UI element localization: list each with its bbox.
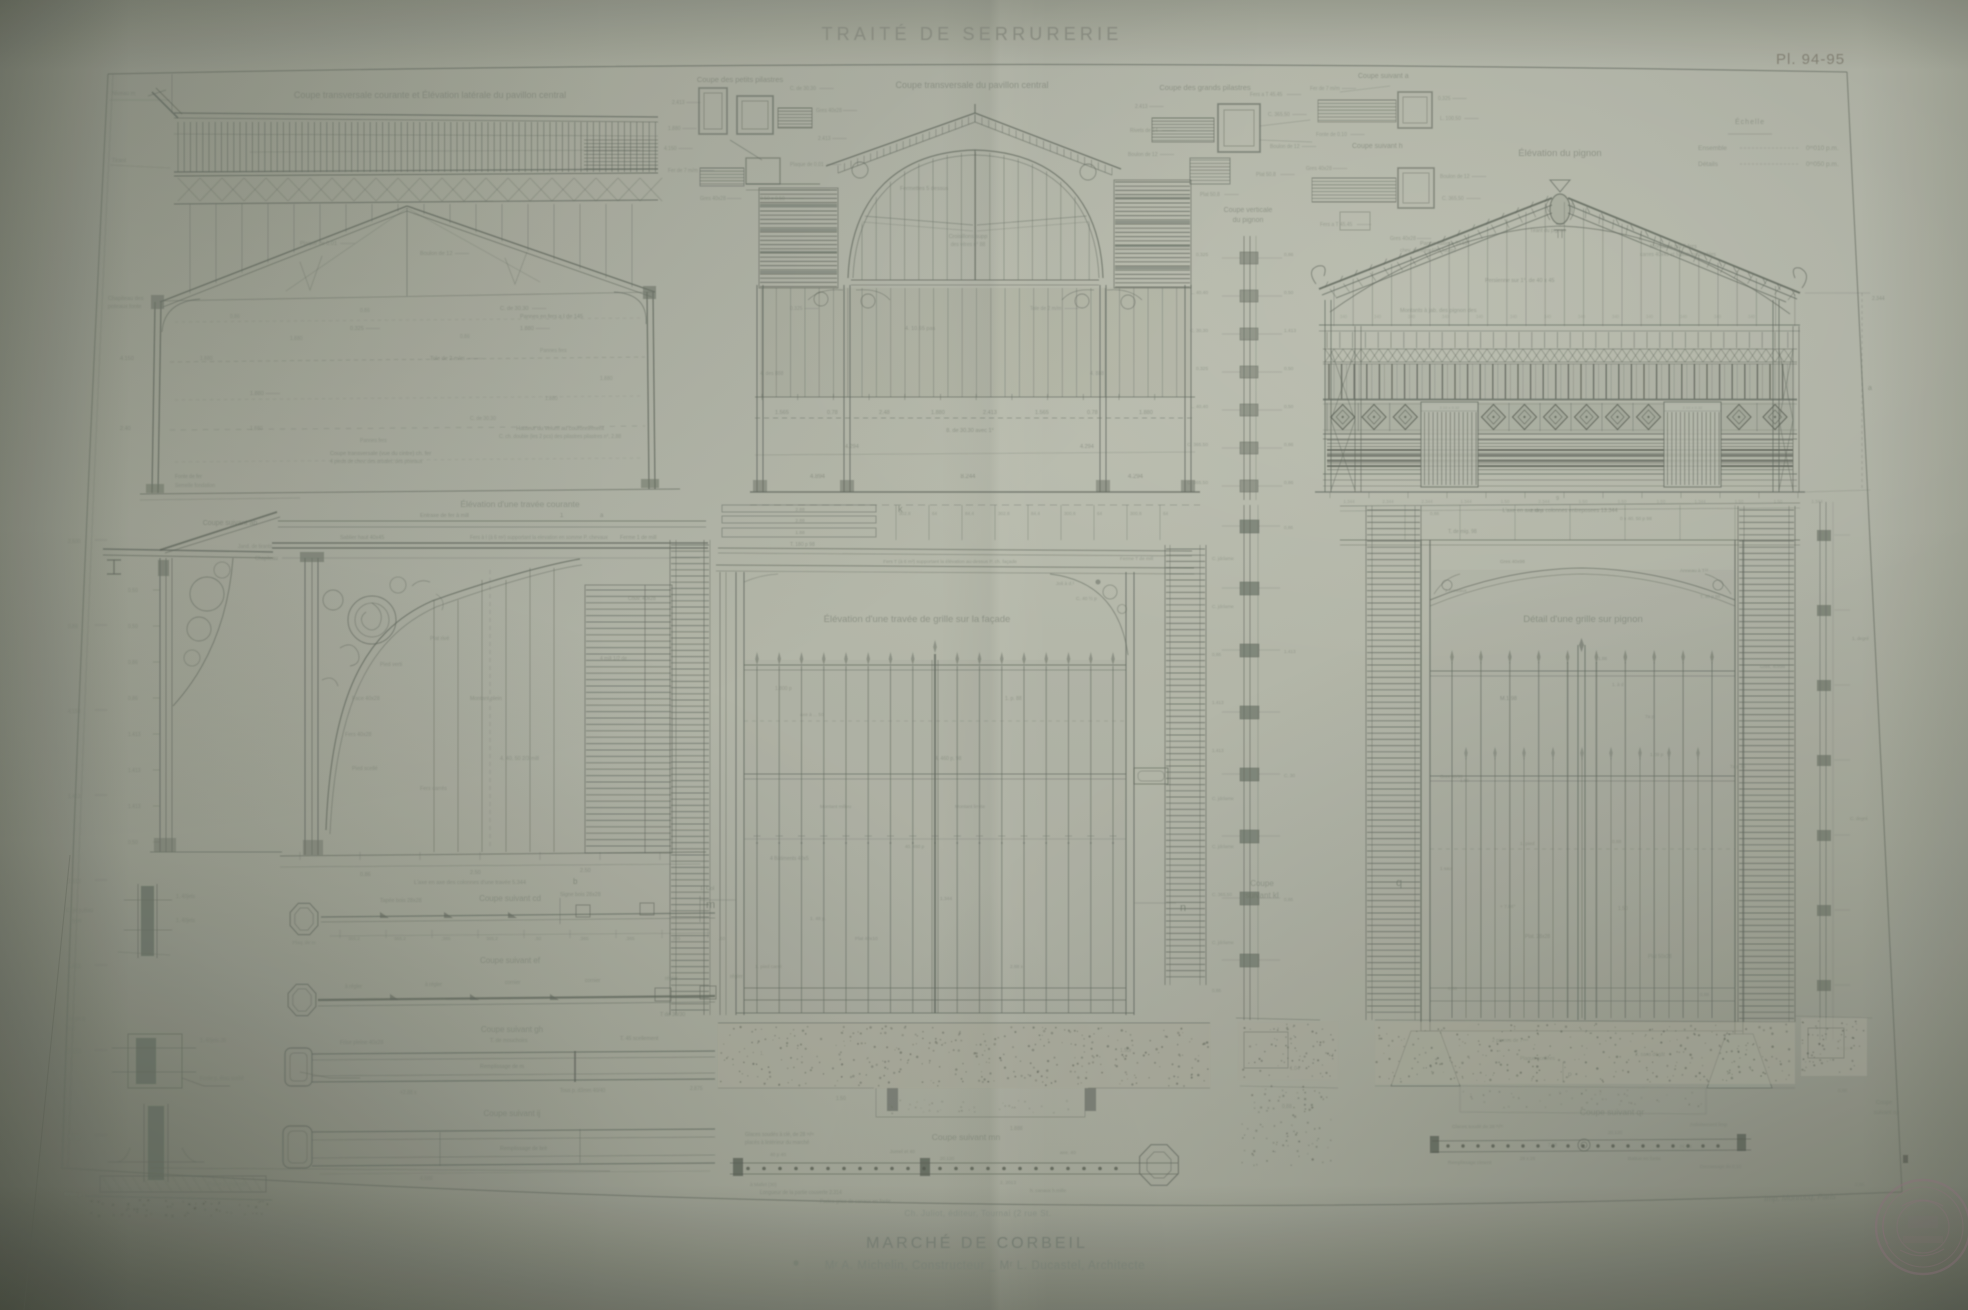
svg-text:Gres 40x28: Gres 40x28	[816, 108, 842, 114]
svg-text:0.86: 0.86	[1284, 442, 1294, 448]
svg-text:a: a	[1868, 385, 1872, 392]
svg-text:MARCHÉ DE CORBEIL: MARCHÉ DE CORBEIL	[866, 1233, 1088, 1252]
svg-text:L'axe en axe des colonnes entr: L'axe en axe des colonnes entreposees 13…	[1502, 508, 1617, 514]
svg-text:Fonte p. étau scellé: Fonte p. étau scellé	[200, 1076, 244, 1082]
svg-text:Plaque de 0.01: Plaque de 0.01	[300, 241, 337, 247]
svg-text:Montant milieu: Montant milieu	[820, 804, 852, 810]
svg-text:Entraxe de fer à mill: Entraxe de fer à mill	[420, 513, 469, 519]
svg-text:1.50: 1.50	[1618, 499, 1627, 504]
svg-text:1. 40jets JB: 1. 40jets JB	[200, 1038, 227, 1044]
svg-text:340: 340	[1714, 314, 1722, 319]
svg-text:0.88: 0.88	[1448, 986, 1457, 991]
svg-text:Chapiteau: Chapiteau	[255, 556, 278, 562]
svg-text:cornier: cornier	[585, 978, 601, 984]
svg-text:du pignon: du pignon	[1233, 217, 1264, 224]
svg-text:2.413: 2.413	[672, 100, 685, 106]
svg-text:Mʳ A. Michelin, Constructeur _: Mʳ A. Michelin, Constructeur _ Mʳ L. Duc…	[825, 1260, 1145, 1272]
svg-text:T. 180 p 98: T. 180 p 98	[790, 542, 815, 548]
svg-text:1.413: 1.413	[128, 732, 141, 738]
svg-text:2.413: 2.413	[818, 136, 831, 142]
svg-text:1.880: 1.880	[600, 376, 613, 382]
svg-text:0.86: 0.86	[1212, 988, 1221, 993]
svg-text:Patins p. légende: Patins p. légende	[208, 1182, 247, 1188]
svg-text:1.565: 1.565	[1035, 410, 1049, 416]
svg-text:1.880: 1.880	[520, 326, 534, 332]
svg-text:4. des 888: 4. des 888	[760, 371, 784, 377]
svg-text:Chapiteau des: Chapiteau des	[108, 296, 144, 302]
svg-text:1.50: 1.50	[836, 1096, 846, 1102]
svg-text:Fers à I (à 6 m²) supportant l: Fers à I (à 6 m²) supportant la elevatio…	[470, 535, 608, 541]
svg-text:0.325: 0.325	[1438, 96, 1451, 102]
svg-text:C. de 30.30: C. de 30.30	[470, 416, 496, 422]
svg-text:0.88: 0.88	[1838, 1088, 1847, 1093]
svg-text:Plat 50x28: Plat 50x28	[1648, 954, 1672, 960]
svg-text:0.50: 0.50	[1284, 290, 1294, 296]
svg-text:0.325: 0.325	[1196, 366, 1208, 372]
svg-text:1.50: 1.50	[1657, 499, 1666, 504]
svg-text:q: q	[1396, 877, 1402, 889]
svg-text:C. ch. double (les 2 pcs) des: C. ch. double (les 2 pcs) des pilastres …	[499, 434, 621, 440]
svg-text:m: m	[706, 899, 715, 911]
svg-text:9: 9	[1556, 496, 1559, 502]
svg-text:4 Bâtiments 40x5: 4 Bâtiments 40x5	[770, 856, 809, 862]
svg-text:0.50 x 0.50: 0.50 x 0.50	[760, 196, 785, 202]
svg-text:Coupe transversale courante et: Coupe transversale courante et Élévation…	[294, 90, 566, 100]
svg-text:Glaces soudé de 28 ᵐ/ᵐ: Glaces soudé de 28 ᵐ/ᵐ	[1452, 1124, 1503, 1130]
svg-text:Boulon de 12: Boulon de 12	[1440, 174, 1470, 180]
svg-text:0 x 40. 50 p 98: 0 x 40. 50 p 98	[1620, 516, 1652, 522]
svg-text:340: 340	[1544, 314, 1552, 319]
svg-text:Hauteur du velum au couronneme: Hauteur du velum au couronnement	[516, 426, 604, 432]
svg-text:0.88: 0.88	[1430, 511, 1439, 516]
svg-text:Glaces soudés à clé, de 28 ᵐ/ᵐ: Glaces soudés à clé, de 28 ᵐ/ᵐ	[745, 1132, 814, 1138]
svg-text:Fonte de fer: Fonte de fer	[175, 474, 202, 480]
svg-text:4.150: 4.150	[68, 709, 81, 715]
svg-text:Fers T (à 6 m²) supportant la: Fers T (à 6 m²) supportant la élévation …	[883, 559, 1017, 565]
svg-text:2.10 x 0.32: 2.10 x 0.32	[1683, 405, 1704, 410]
svg-text:Détails: Détails	[1698, 161, 1719, 168]
svg-text:1.880: 1.880	[200, 356, 213, 362]
svg-text:Coupe suivant qr: Coupe suivant qr	[1580, 1107, 1644, 1117]
svg-text:C. jdclame: C. jdclame	[1212, 556, 1234, 561]
svg-text:C. jet p.étau: C. jet p.étau	[66, 908, 93, 914]
svg-text:Signe bois 28x28: Signe bois 28x28	[560, 892, 601, 898]
svg-text:Boulon de 12: Boulon de 12	[1128, 152, 1158, 158]
svg-text:C. 365.50: C. 365.50	[1442, 196, 1464, 202]
svg-text:carres 40x45 et 5 plats assemb: carres 40x45 et 5 plats assembles	[1640, 252, 1716, 258]
svg-text:1.344: 1.344	[1460, 499, 1472, 504]
svg-text:340: 340	[1680, 314, 1688, 319]
svg-text:T de 30/30: T de 30/30	[660, 1012, 685, 1018]
svg-text:1.: 1.	[760, 1051, 764, 1057]
svg-text:à régler: à régler	[425, 982, 442, 988]
svg-text:Fermettes 5 dessus: Fermettes 5 dessus	[900, 186, 949, 192]
svg-text:0.86: 0.86	[1284, 897, 1293, 902]
svg-text:0.86: 0.86	[230, 314, 240, 320]
svg-text:1 saut: 1 saut	[1440, 866, 1453, 871]
svg-text:1.413: 1.413	[68, 879, 81, 885]
svg-text:0.86: 0.86	[128, 696, 138, 702]
svg-text:Pl. 94-95: Pl. 94-95	[1776, 51, 1845, 68]
svg-text:à régler: à régler	[345, 984, 362, 990]
svg-text:1. à d: 1. à d	[1612, 682, 1624, 687]
svg-text:C. jdclame: C. jdclame	[1212, 844, 1234, 849]
svg-text:Tole de 2 m/m: Tole de 2 m/m	[1030, 306, 1061, 312]
svg-text:1.413: 1.413	[1284, 649, 1296, 654]
svg-text:C. de 30.30: C. de 30.30	[790, 86, 816, 92]
svg-text:L. 40.40: L. 40.40	[1191, 404, 1209, 410]
svg-text:0.88: 0.88	[1282, 1104, 1292, 1110]
svg-text:Tirant du pignon: Tirant du pignon	[1530, 228, 1566, 234]
svg-text:4.294: 4.294	[1128, 474, 1144, 480]
svg-text:Échelle: Échelle	[1735, 117, 1765, 126]
svg-text:b: b	[573, 877, 578, 886]
svg-text:.365: .365	[442, 936, 451, 941]
svg-text:1.50: 1.50	[1579, 499, 1588, 504]
svg-text:84.4: 84.4	[965, 511, 974, 516]
svg-text:0.325: 0.325	[1196, 252, 1208, 258]
svg-text:Croisillons supp: Croisillons supp	[949, 234, 988, 240]
svg-text:Sablier haut 40x45: Sablier haut 40x45	[340, 535, 384, 541]
svg-text:28 x 28: 28 x 28	[1520, 1156, 1536, 1161]
svg-text:1.800 p: 1.800 p	[775, 686, 792, 692]
svg-text:n: n	[1180, 902, 1186, 914]
svg-text:0.50: 0.50	[1284, 404, 1294, 410]
svg-text:L. 40.40: L. 40.40	[1191, 290, 1209, 296]
svg-text:Ensemble: Ensemble	[1698, 145, 1727, 152]
svg-text:1. pied carré: 1. pied carré	[755, 964, 782, 970]
svg-text:20.120: 20.120	[1608, 1130, 1622, 1135]
svg-text:0.86: 0.86	[360, 308, 370, 314]
svg-text:64: 64	[1097, 511, 1103, 516]
svg-text:.365: .365	[580, 936, 589, 941]
svg-text:1.413: 1.413	[68, 964, 81, 970]
svg-text:Remplissage de brè: Remplissage de brè	[500, 1146, 547, 1152]
svg-text:+ 7.88°: + 7.88°	[1500, 904, 1515, 910]
svg-text:C. 365.50: C. 365.50	[1187, 442, 1208, 448]
svg-text:Coupe des petits pilastres: Coupe des petits pilastres	[697, 75, 784, 84]
svg-text:340: 340	[1510, 314, 1518, 319]
svg-text:Boulon de 12: Boulon de 12	[420, 251, 452, 257]
svg-text:chev. portees 40¢, fautes: chev. portees 40¢, fautes	[1400, 248, 1456, 254]
svg-text:Remplissage de m: Remplissage de m	[480, 1064, 524, 1070]
svg-text:40. 460 p: 40. 460 p	[905, 844, 925, 849]
svg-text:Battue en fonte: Battue en fonte	[1628, 1156, 1661, 1162]
svg-text:1. Col: 1. Col	[700, 886, 714, 892]
svg-text:1.344: 1.344	[1811, 499, 1823, 504]
svg-text:1.880: 1.880	[250, 391, 264, 397]
svg-text:T. 45 scellement: T. 45 scellement	[620, 1036, 659, 1042]
svg-text:Joli à d.²: Joli à d.²	[1056, 581, 1075, 587]
svg-text:Plat rivé: Plat rivé	[430, 636, 449, 642]
svg-text:2.88 p: 2.88 p	[1530, 508, 1543, 513]
svg-text:Gres 40x28: Gres 40x28	[1390, 236, 1416, 242]
svg-text:0.325: 0.325	[350, 326, 364, 332]
svg-text:Face 40x28: Face 40x28	[352, 696, 380, 702]
svg-text:Fers a T 45.45: Fers a T 45.45	[1250, 92, 1283, 98]
svg-text:302.8: 302.8	[998, 511, 1010, 516]
svg-text:Tous p. d3mm 40/40: Tous p. d3mm 40/40	[560, 1088, 606, 1094]
svg-text:Coupe suivant gh: Coupe suivant gh	[481, 1025, 543, 1034]
svg-text:7a p: 7a p	[1645, 714, 1655, 720]
svg-text:Élévation d'une travée de gril: Élévation d'une travée de grille sur la …	[824, 614, 1011, 625]
svg-text:type: type	[72, 918, 82, 924]
svg-text:Gres. 40x98: Gres. 40x98	[1760, 664, 1785, 669]
svg-text:340: 340	[1408, 314, 1416, 319]
svg-text:2.50: 2.50	[470, 870, 481, 876]
svg-text:1.50r: 1.50r	[1120, 1048, 1132, 1054]
svg-text:Gres 40x28: Gres 40x28	[700, 196, 726, 202]
svg-text:Ch. Juliot, éditeur, Tournai (: Ch. Juliot, éditeur, Tournai (2 rue St.	[905, 1209, 1052, 1218]
svg-text:0.86: 0.86	[1284, 252, 1294, 258]
svg-text:à Mallet (30): à Mallet (30)	[750, 1182, 777, 1188]
svg-text:4.150: 4.150	[664, 146, 677, 152]
svg-text:Fers 40x28: Fers 40x28	[345, 732, 372, 738]
svg-text:Plaque de 0.01: Plaque de 0.01	[790, 162, 824, 168]
svg-text:C. degré: C. degré	[1850, 816, 1868, 821]
svg-text:1.04: 1.04	[1290, 1066, 1300, 1072]
svg-text:Coupe suivant a: Coupe suivant a	[1358, 73, 1409, 80]
svg-text:p: p	[1568, 1071, 1572, 1078]
svg-text:2.344: 2.344	[1382, 499, 1394, 504]
svg-text:T. de mouchoirs: T. de mouchoirs	[490, 1038, 528, 1044]
svg-text:1.09 p: 1.09 p	[1650, 752, 1664, 758]
svg-text:Béton p.: Béton p.	[64, 1192, 83, 1198]
svg-text:0.50: 0.50	[128, 588, 138, 594]
svg-text:1.88: 1.88	[795, 530, 805, 536]
svg-text:L'axe en axe des colonnes d'un: L'axe en axe des colonnes d'une travée 5…	[414, 880, 526, 886]
svg-text:Plat 50.8: Plat 50.8	[1256, 172, 1276, 178]
svg-text:Gres 40x98: Gres 40x98	[1500, 559, 1525, 565]
svg-text:Plaque scellées: Plaque scellées	[1520, 1056, 1556, 1062]
svg-text:Fer de 7 m/m: Fer de 7 m/m	[668, 168, 698, 174]
svg-text:Coupe: Coupe	[1876, 1100, 1892, 1106]
svg-text:1.413: 1.413	[128, 804, 141, 810]
svg-text:7.88: 7.88	[1548, 1142, 1557, 1147]
svg-text:Plat. 28x28: Plat. 28x28	[1525, 934, 1550, 940]
svg-text:Niveau m: Niveau m	[112, 91, 136, 97]
svg-text:Tole de 2 m/m: Tole de 2 m/m	[430, 356, 465, 362]
svg-text:Coupe suivant cd: Coupe suivant cd	[479, 894, 541, 903]
svg-text:40 p 40: 40 p 40	[770, 1152, 786, 1158]
svg-text:Fers a T 45.45: Fers a T 45.45	[1320, 222, 1353, 228]
svg-text:k: k	[898, 504, 903, 514]
svg-text:L. 100.50: L. 100.50	[1440, 116, 1461, 122]
svg-text:340: 340	[1374, 314, 1382, 319]
svg-text:1. 40jets: 1. 40jets	[176, 894, 195, 900]
svg-text:Frise pleine 40x28: Frise pleine 40x28	[340, 1040, 383, 1046]
svg-text:340: 340	[1646, 314, 1654, 319]
svg-text:Pi. 98: Pi. 98	[1680, 1144, 1692, 1149]
svg-text:340: 340	[1748, 314, 1756, 319]
svg-text:Rivets de 14: Rivets de 14	[1130, 128, 1158, 134]
svg-text:TRAITÉ DE SERRURERIE: TRAITÉ DE SERRURERIE	[821, 24, 1122, 44]
svg-text:0.86: 0.86	[68, 624, 78, 630]
svg-text:Tirant: Tirant	[112, 158, 126, 164]
svg-text:2.88: 2.88	[795, 518, 805, 524]
svg-text:1.413: 1.413	[1284, 328, 1296, 334]
svg-text:placés à lintérieur du marché: placés à lintérieur du marché	[745, 1140, 809, 1146]
svg-text:Plat 40x10: Plat 40x10	[855, 936, 878, 942]
svg-text:Coupe suivant ef: Coupe suivant ef	[480, 956, 541, 965]
svg-text:0.86: 0.86	[1284, 480, 1294, 486]
svg-text:Pannes fers: Pannes fers	[540, 348, 567, 354]
svg-text:8.244: 8.244	[960, 474, 976, 480]
svg-text:2. sans dégât: 2. sans dégât	[1635, 1052, 1666, 1058]
svg-text:suivant op: suivant op	[1874, 1110, 1899, 1116]
svg-text:Ferme 1 de mill: Ferme 1 de mill	[620, 535, 657, 541]
svg-text:4.150: 4.150	[68, 1134, 81, 1140]
svg-text:axe à ... 50: axe à ... 50	[800, 712, 824, 718]
svg-text:300.8: 300.8	[1130, 511, 1142, 516]
svg-text:Tapée bois 28x28: Tapée bois 28x28	[380, 898, 422, 904]
svg-text:Coupe suivant ij: Coupe suivant ij	[484, 1109, 541, 1118]
svg-text:1.413: 1.413	[68, 794, 81, 800]
svg-text:C. jdclame: C. jdclame	[1212, 604, 1234, 609]
svg-text:340: 340	[1442, 314, 1450, 319]
svg-text:0ᵐ050 p.m.: 0ᵐ050 p.m.	[1806, 161, 1839, 168]
svg-text:2.50: 2.50	[580, 868, 591, 874]
svg-text:Élévation d'une travée courant: Élévation d'une travée courante	[460, 499, 580, 509]
svg-text:Fers carrés: Fers carrés	[420, 786, 447, 792]
svg-text:régler: régler	[730, 974, 743, 980]
svg-text:C. 365.50: C. 365.50	[1268, 112, 1290, 118]
svg-text:.50: .50	[535, 936, 542, 941]
svg-text:0.78: 0.78	[827, 410, 838, 416]
svg-text:1. pied: 1. pied	[1520, 841, 1535, 847]
svg-text:h. canaux h.mille: h. canaux h.mille	[1030, 1188, 1066, 1194]
svg-text:0.88: 0.88	[1700, 992, 1709, 997]
svg-text:300.8: 300.8	[1064, 511, 1076, 516]
svg-text:Coupe g: Coupe g	[66, 1016, 85, 1022]
svg-text:0.50: 0.50	[1284, 366, 1294, 372]
svg-text:1.880: 1.880	[668, 126, 681, 132]
svg-text:C. 30: C. 30	[1284, 773, 1295, 778]
svg-text:4.294: 4.294	[1080, 444, 1094, 450]
svg-text:+2.88 x: +2.88 x	[400, 1090, 417, 1096]
svg-text:4. 10.65 pas: 4. 10.65 pas	[905, 326, 936, 332]
svg-text:0.86: 0.86	[1212, 652, 1221, 657]
svg-text:Montant limite: Montant limite	[955, 804, 985, 810]
svg-text:1.880: 1.880	[290, 336, 303, 342]
svg-text:des vitres n° 88: des vitres n° 88	[951, 242, 986, 248]
svg-text:Coupe: Coupe	[1250, 879, 1274, 888]
svg-text:2.500: 2.500	[68, 539, 81, 545]
svg-text:Fonte de 0.10: Fonte de 0.10	[1316, 132, 1347, 138]
svg-text:4. 460 p. 98: 4. 460 p. 98	[935, 756, 962, 762]
svg-text:Ardoisement limp: Ardoisement limp	[1690, 1122, 1727, 1128]
svg-text:Panne faitiere 5x45: Panne faitiere 5x45	[1420, 241, 1467, 247]
svg-text:2.344: 2.344	[1421, 499, 1433, 504]
svg-text:1.50: 1.50	[1501, 499, 1510, 504]
svg-text:.365: .365	[626, 936, 635, 941]
svg-text:Remplissage ciment: Remplissage ciment	[1448, 1160, 1492, 1166]
svg-text:2.88: 2.88	[1855, 1182, 1864, 1187]
svg-text:2.10 x 0.32: 2.10 x 0.32	[1440, 405, 1461, 410]
svg-text:1.50: 1.50	[1618, 906, 1628, 912]
svg-text:Boulon de 12: Boulon de 12	[1270, 144, 1300, 150]
svg-text:C. 365.50: C. 365.50	[1187, 480, 1208, 486]
svg-text:2.48: 2.48	[879, 410, 890, 416]
svg-text:2.344: 2.344	[1538, 499, 1550, 504]
svg-text:axe. 40: axe. 40	[1060, 1150, 1076, 1156]
svg-text:340: 340	[1578, 314, 1586, 319]
svg-text:1.888: 1.888	[1010, 1126, 1023, 1132]
svg-text:0.86: 0.86	[360, 872, 371, 878]
svg-text:0.325: 0.325	[790, 306, 803, 312]
svg-text:Montants gril 5 fers: Montants gril 5 fers	[1650, 244, 1697, 250]
svg-text:84.4: 84.4	[1031, 511, 1040, 516]
svg-text:2.413: 2.413	[1135, 104, 1148, 110]
svg-text:Jumel et 40: Jumel et 40	[890, 1149, 915, 1155]
svg-text:Plaq. de m: Plaq. de m	[293, 940, 316, 946]
svg-text:C. 365,50: C. 365,50	[1212, 892, 1232, 897]
svg-text:4.294: 4.294	[845, 444, 859, 450]
svg-text:Coupe des grands pilastres: Coupe des grands pilastres	[1159, 83, 1251, 92]
svg-text:4. 40. 50 2/3 mill: 4. 40. 50 2/3 mill	[500, 756, 539, 762]
svg-text:Persienne sur 1°. de 40 x 45: Persienne sur 1°. de 40 x 45	[1485, 278, 1554, 284]
svg-text:M.1.98: M.1.98	[1500, 696, 1517, 702]
svg-text:4.894: 4.894	[810, 474, 826, 480]
svg-text:2.88: 2.88	[795, 507, 805, 513]
svg-text:1.344: 1.344	[1343, 499, 1355, 504]
svg-text:poteaux fonte: poteaux fonte	[108, 304, 141, 310]
svg-text:4 pieds de chev. des arbalet.: 4 pieds de chev. des arbalet. des poteau…	[330, 459, 423, 465]
svg-text:Pannes en fers a I de 145: Pannes en fers a I de 145	[520, 314, 583, 320]
svg-text:4.888: 4.888	[420, 1176, 433, 1182]
svg-text:2.413: 2.413	[983, 410, 997, 416]
svg-text:1. p. 88: 1. p. 88	[1005, 696, 1022, 702]
svg-text:Fer de 7 m/m: Fer de 7 m/m	[1310, 86, 1340, 92]
svg-text:0.50: 0.50	[128, 840, 138, 846]
svg-text:Ferme T de mill: Ferme T de mill	[1120, 556, 1153, 562]
svg-text:1.880: 1.880	[1139, 410, 1153, 416]
svg-text:Coupe suivant h: Coupe suivant h	[1352, 143, 1403, 150]
svg-text:1.80: 1.80	[1460, 778, 1469, 783]
svg-text:Jand. de tirants: Jand. de tirants	[238, 544, 273, 550]
svg-text:1. degré: 1. degré	[1852, 636, 1869, 641]
svg-text:2.88 x: 2.88 x	[1010, 964, 1024, 970]
svg-text:365.2: 365.2	[394, 936, 406, 941]
svg-text:Couv. 40x28: Couv. 40x28	[628, 596, 656, 602]
svg-text:0.50: 0.50	[128, 624, 138, 630]
svg-text:C. de 30.30: C. de 30.30	[500, 306, 528, 312]
svg-text:2.344: 2.344	[1872, 296, 1885, 302]
svg-text:C. 30.30: C. 30.30	[1190, 328, 1208, 334]
svg-text:64: 64	[1163, 511, 1169, 516]
svg-text:suiv: suiv	[66, 1026, 75, 1032]
svg-text:1. 48 p.: 1. 48 p.	[810, 916, 826, 922]
svg-text:Pannes fers: Pannes fers	[360, 438, 387, 444]
svg-text:0.86: 0.86	[1284, 525, 1293, 530]
svg-text:0.86: 0.86	[460, 334, 470, 340]
svg-text:Coupe transversale du pavillon: Coupe transversale du pavillon central	[895, 80, 1048, 90]
svg-text:1.413: 1.413	[128, 768, 141, 774]
svg-text:20.120: 20.120	[940, 1156, 954, 1161]
svg-text:Coupe transversale (vue du cin: Coupe transversale (vue du cintre) ch. f…	[330, 451, 431, 457]
svg-text:1.565: 1.565	[775, 410, 789, 416]
svg-text:8. de 30.30 avec 1°: 8. de 30.30 avec 1°	[946, 428, 993, 434]
svg-text:Gres 40x28: Gres 40x28	[1306, 166, 1332, 172]
svg-text:C. jdclame: C. jdclame	[1212, 796, 1234, 801]
svg-text:Decrassage de 0.10: Decrassage de 0.10	[1700, 1164, 1742, 1169]
svg-text:2. 2013: 2. 2013	[1000, 1180, 1016, 1186]
svg-text:T. de mig. 98: T. de mig. 98	[1448, 529, 1477, 535]
svg-text:0.78: 0.78	[1087, 410, 1098, 416]
svg-text:1.880: 1.880	[931, 410, 945, 416]
svg-text:64: 64	[932, 511, 938, 516]
svg-text:Portes grise de canaux en: Portes grise de canaux en fonte	[820, 1199, 891, 1205]
